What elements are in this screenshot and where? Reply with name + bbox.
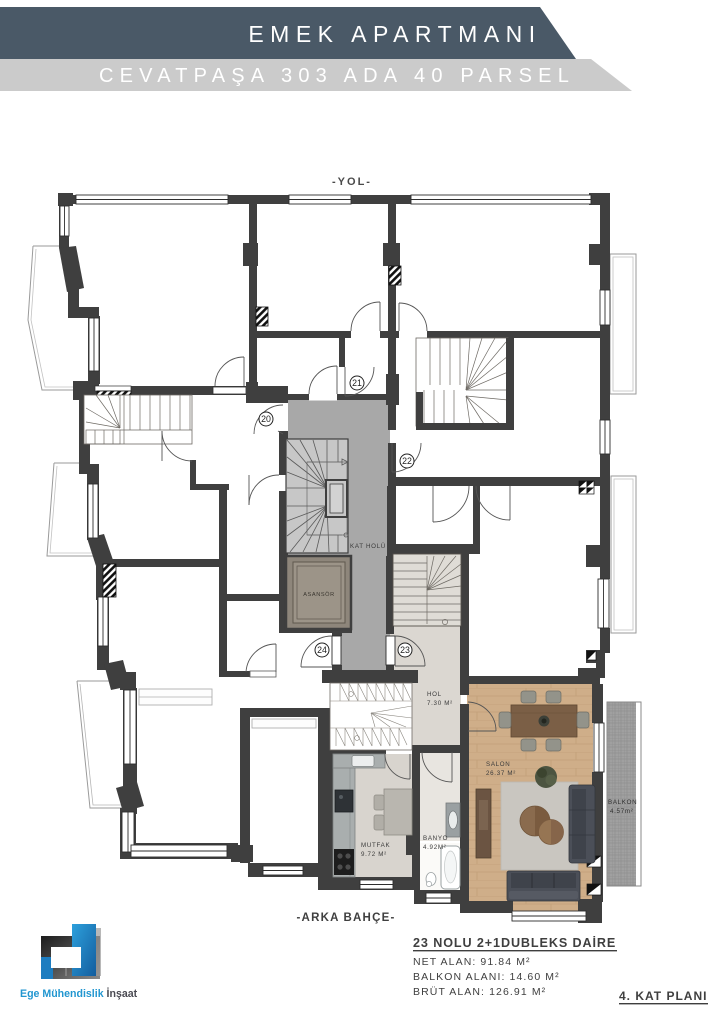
svg-text:BALKON ALANI: 14.60 M²: BALKON ALANI: 14.60 M² bbox=[413, 971, 560, 983]
svg-text:24: 24 bbox=[317, 645, 327, 655]
svg-text:BALKON: BALKON bbox=[608, 799, 637, 806]
svg-text:EMEK APARTMANI: EMEK APARTMANI bbox=[248, 21, 541, 47]
svg-text:HOL: HOL bbox=[427, 691, 442, 698]
svg-text:ASANSÖR: ASANSÖR bbox=[303, 591, 335, 598]
svg-text:CEVATPAŞA 303 ADA 40 PARSEL: CEVATPAŞA 303 ADA 40 PARSEL bbox=[99, 65, 575, 87]
svg-text:4.57m²: 4.57m² bbox=[610, 808, 633, 815]
svg-text:4. KAT PLANI: 4. KAT PLANI bbox=[619, 989, 707, 1003]
svg-text:21: 21 bbox=[352, 378, 362, 388]
svg-text:MUTFAK: MUTFAK bbox=[361, 842, 390, 849]
svg-text:SALON: SALON bbox=[486, 761, 510, 768]
svg-text:BANYO: BANYO bbox=[423, 835, 448, 842]
svg-text:4.92M²: 4.92M² bbox=[423, 844, 446, 851]
svg-text:KAT HOLÜ: KAT HOLÜ bbox=[350, 543, 386, 550]
svg-text:-YOL-: -YOL- bbox=[332, 176, 372, 188]
svg-text:-ARKA BAHÇE-: -ARKA BAHÇE- bbox=[297, 912, 396, 924]
svg-text:26.37 M²: 26.37 M² bbox=[486, 770, 516, 777]
svg-text:23: 23 bbox=[400, 645, 410, 655]
svg-text:9.72 M²: 9.72 M² bbox=[361, 851, 387, 858]
svg-text:7.30 M²: 7.30 M² bbox=[427, 700, 453, 707]
svg-text:BRÜT ALAN: 126.91 M²: BRÜT ALAN: 126.91 M² bbox=[413, 986, 546, 998]
svg-text:NET ALAN: 91.84 M²: NET ALAN: 91.84 M² bbox=[413, 956, 531, 968]
svg-text:20: 20 bbox=[261, 414, 271, 424]
svg-text:Ege Mühendislik İnşaat: Ege Mühendislik İnşaat bbox=[20, 987, 138, 1000]
svg-text:23 NOLU 2+1DUBLEKS DAİRE: 23 NOLU 2+1DUBLEKS DAİRE bbox=[413, 935, 616, 950]
svg-text:22: 22 bbox=[402, 456, 412, 466]
